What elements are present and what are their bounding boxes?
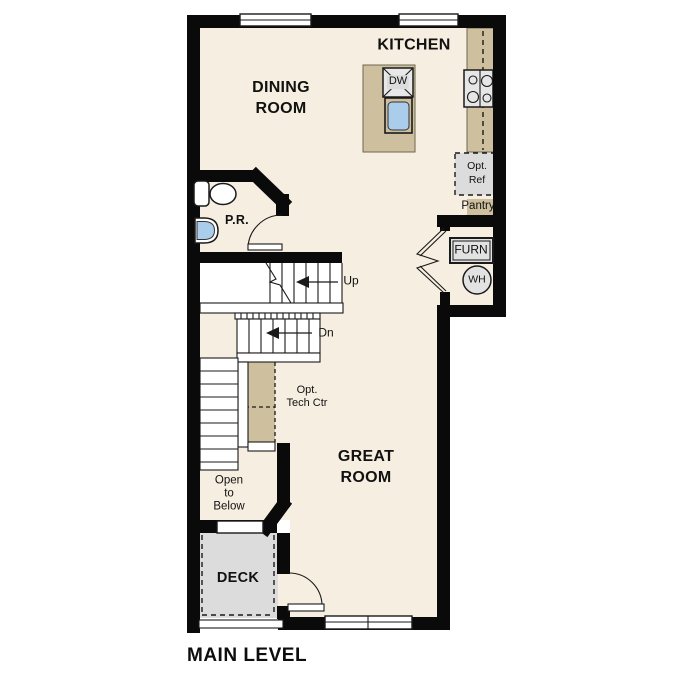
toilet-tank — [194, 181, 209, 206]
stairs-down-landing — [237, 353, 320, 362]
plan-title: MAIN LEVEL — [187, 645, 307, 667]
label-pantry: Pantry — [461, 199, 494, 213]
wall-left — [187, 15, 200, 633]
tech-center-cabinet — [248, 362, 275, 442]
label-dining-room: DINING ROOM — [252, 77, 310, 119]
floor-plan: KITCHEN DINING ROOM GREAT ROOM P.R. DECK… — [0, 0, 687, 687]
wall-deck-right — [277, 533, 290, 574]
wall-greatroom-right — [437, 305, 450, 630]
wall-powder-stub — [276, 194, 289, 216]
powder-door-panel — [248, 244, 282, 250]
wall-right-kitchen — [493, 15, 506, 317]
lower-stairwell — [200, 358, 238, 470]
label-open-to-below: Open to Below — [213, 475, 244, 514]
wall-utility-stub-bottom — [440, 292, 450, 305]
powder-sink-basin — [197, 222, 215, 240]
toilet-bowl — [210, 184, 236, 205]
label-up: Up — [343, 274, 358, 289]
wall-stair-top — [187, 252, 342, 263]
label-great-room: GREAT ROOM — [338, 446, 394, 488]
label-kitchen: KITCHEN — [377, 35, 450, 56]
label-dn: Dn — [318, 326, 333, 341]
stairs-up-run — [200, 263, 342, 303]
island-sink-basin — [388, 102, 409, 130]
stair-side-strip — [238, 362, 248, 447]
deck-door-panel — [288, 604, 324, 611]
stair-landing — [200, 303, 343, 313]
label-deck: DECK — [217, 569, 259, 587]
label-water-heater: WH — [468, 273, 486, 286]
deck-lower-edge — [199, 620, 283, 628]
deck-doorway-floor — [277, 573, 290, 607]
floor-plan-drawing — [0, 0, 687, 687]
label-powder-room: P.R. — [225, 213, 249, 229]
wall-utility-top — [437, 215, 506, 227]
label-furnace: FURN — [454, 243, 487, 258]
tech-center-base — [248, 442, 275, 451]
label-dishwasher: DW — [387, 75, 409, 89]
label-opt-ref: Opt. Ref — [467, 159, 487, 187]
label-tech-center: Opt. Tech Ctr — [287, 384, 328, 410]
window-openbelow — [217, 521, 263, 533]
